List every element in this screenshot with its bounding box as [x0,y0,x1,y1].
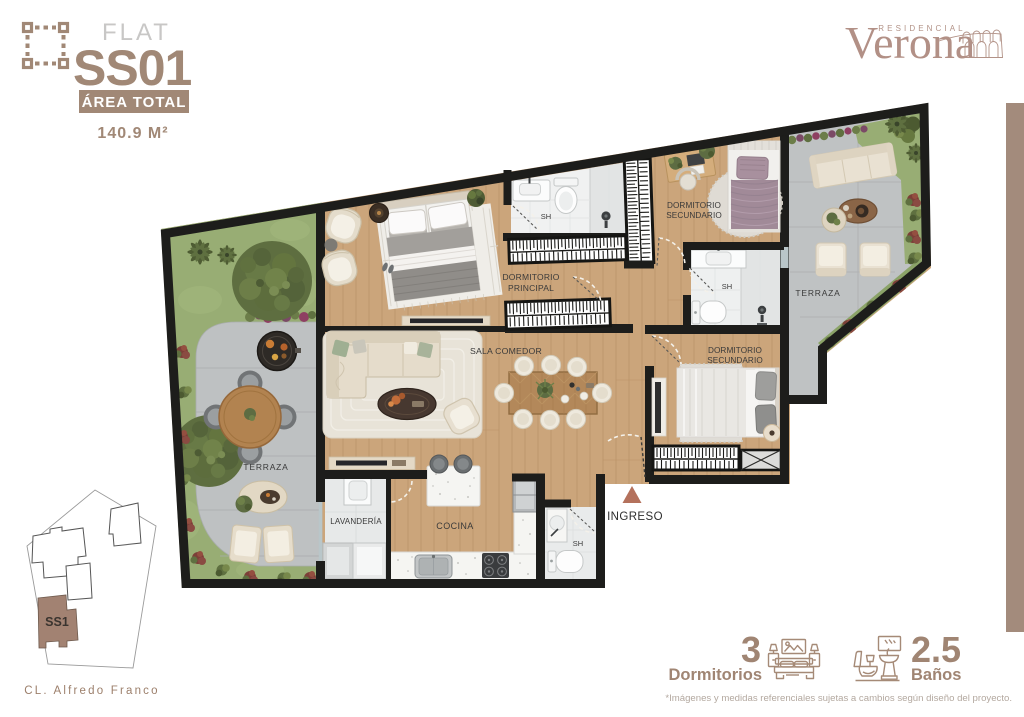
svg-text:DORMITORIO: DORMITORIO [502,272,559,282]
svg-text:INGRESO: INGRESO [607,511,663,523]
svg-text:Baños: Baños [911,666,961,684]
svg-text:3: 3 [741,629,761,670]
svg-text:COCINA: COCINA [436,521,473,531]
svg-text:Dormitorios: Dormitorios [668,666,762,684]
svg-text:SH: SH [722,282,732,291]
svg-text:SECUNDARIO: SECUNDARIO [707,356,763,365]
svg-text:140.9 M²: 140.9 M² [97,125,168,142]
svg-text:Verona: Verona [845,17,975,68]
svg-text:TERRAZA: TERRAZA [243,462,288,472]
svg-text:SECUNDARIO: SECUNDARIO [666,211,722,220]
svg-text:SALA COMEDOR: SALA COMEDOR [470,346,542,356]
svg-text:DORMITORIO: DORMITORIO [708,346,762,355]
svg-text:CL. Alfredo Franco: CL. Alfredo Franco [24,685,159,697]
svg-text:2.5: 2.5 [911,629,961,670]
svg-text:TERRAZA: TERRAZA [795,288,840,298]
svg-text:*Imágenes y medidas referencia: *Imágenes y medidas referenciales sujeta… [665,693,1012,704]
svg-text:SH: SH [573,539,583,548]
svg-text:LAVANDERÍA: LAVANDERÍA [330,517,382,526]
svg-text:SS01: SS01 [73,40,192,96]
svg-text:DORMITORIO: DORMITORIO [667,201,721,210]
svg-text:ÁREA TOTAL: ÁREA TOTAL [82,94,187,111]
svg-text:SS1: SS1 [45,615,69,629]
svg-text:PRINCIPAL: PRINCIPAL [508,283,554,293]
svg-text:SH: SH [541,212,551,221]
